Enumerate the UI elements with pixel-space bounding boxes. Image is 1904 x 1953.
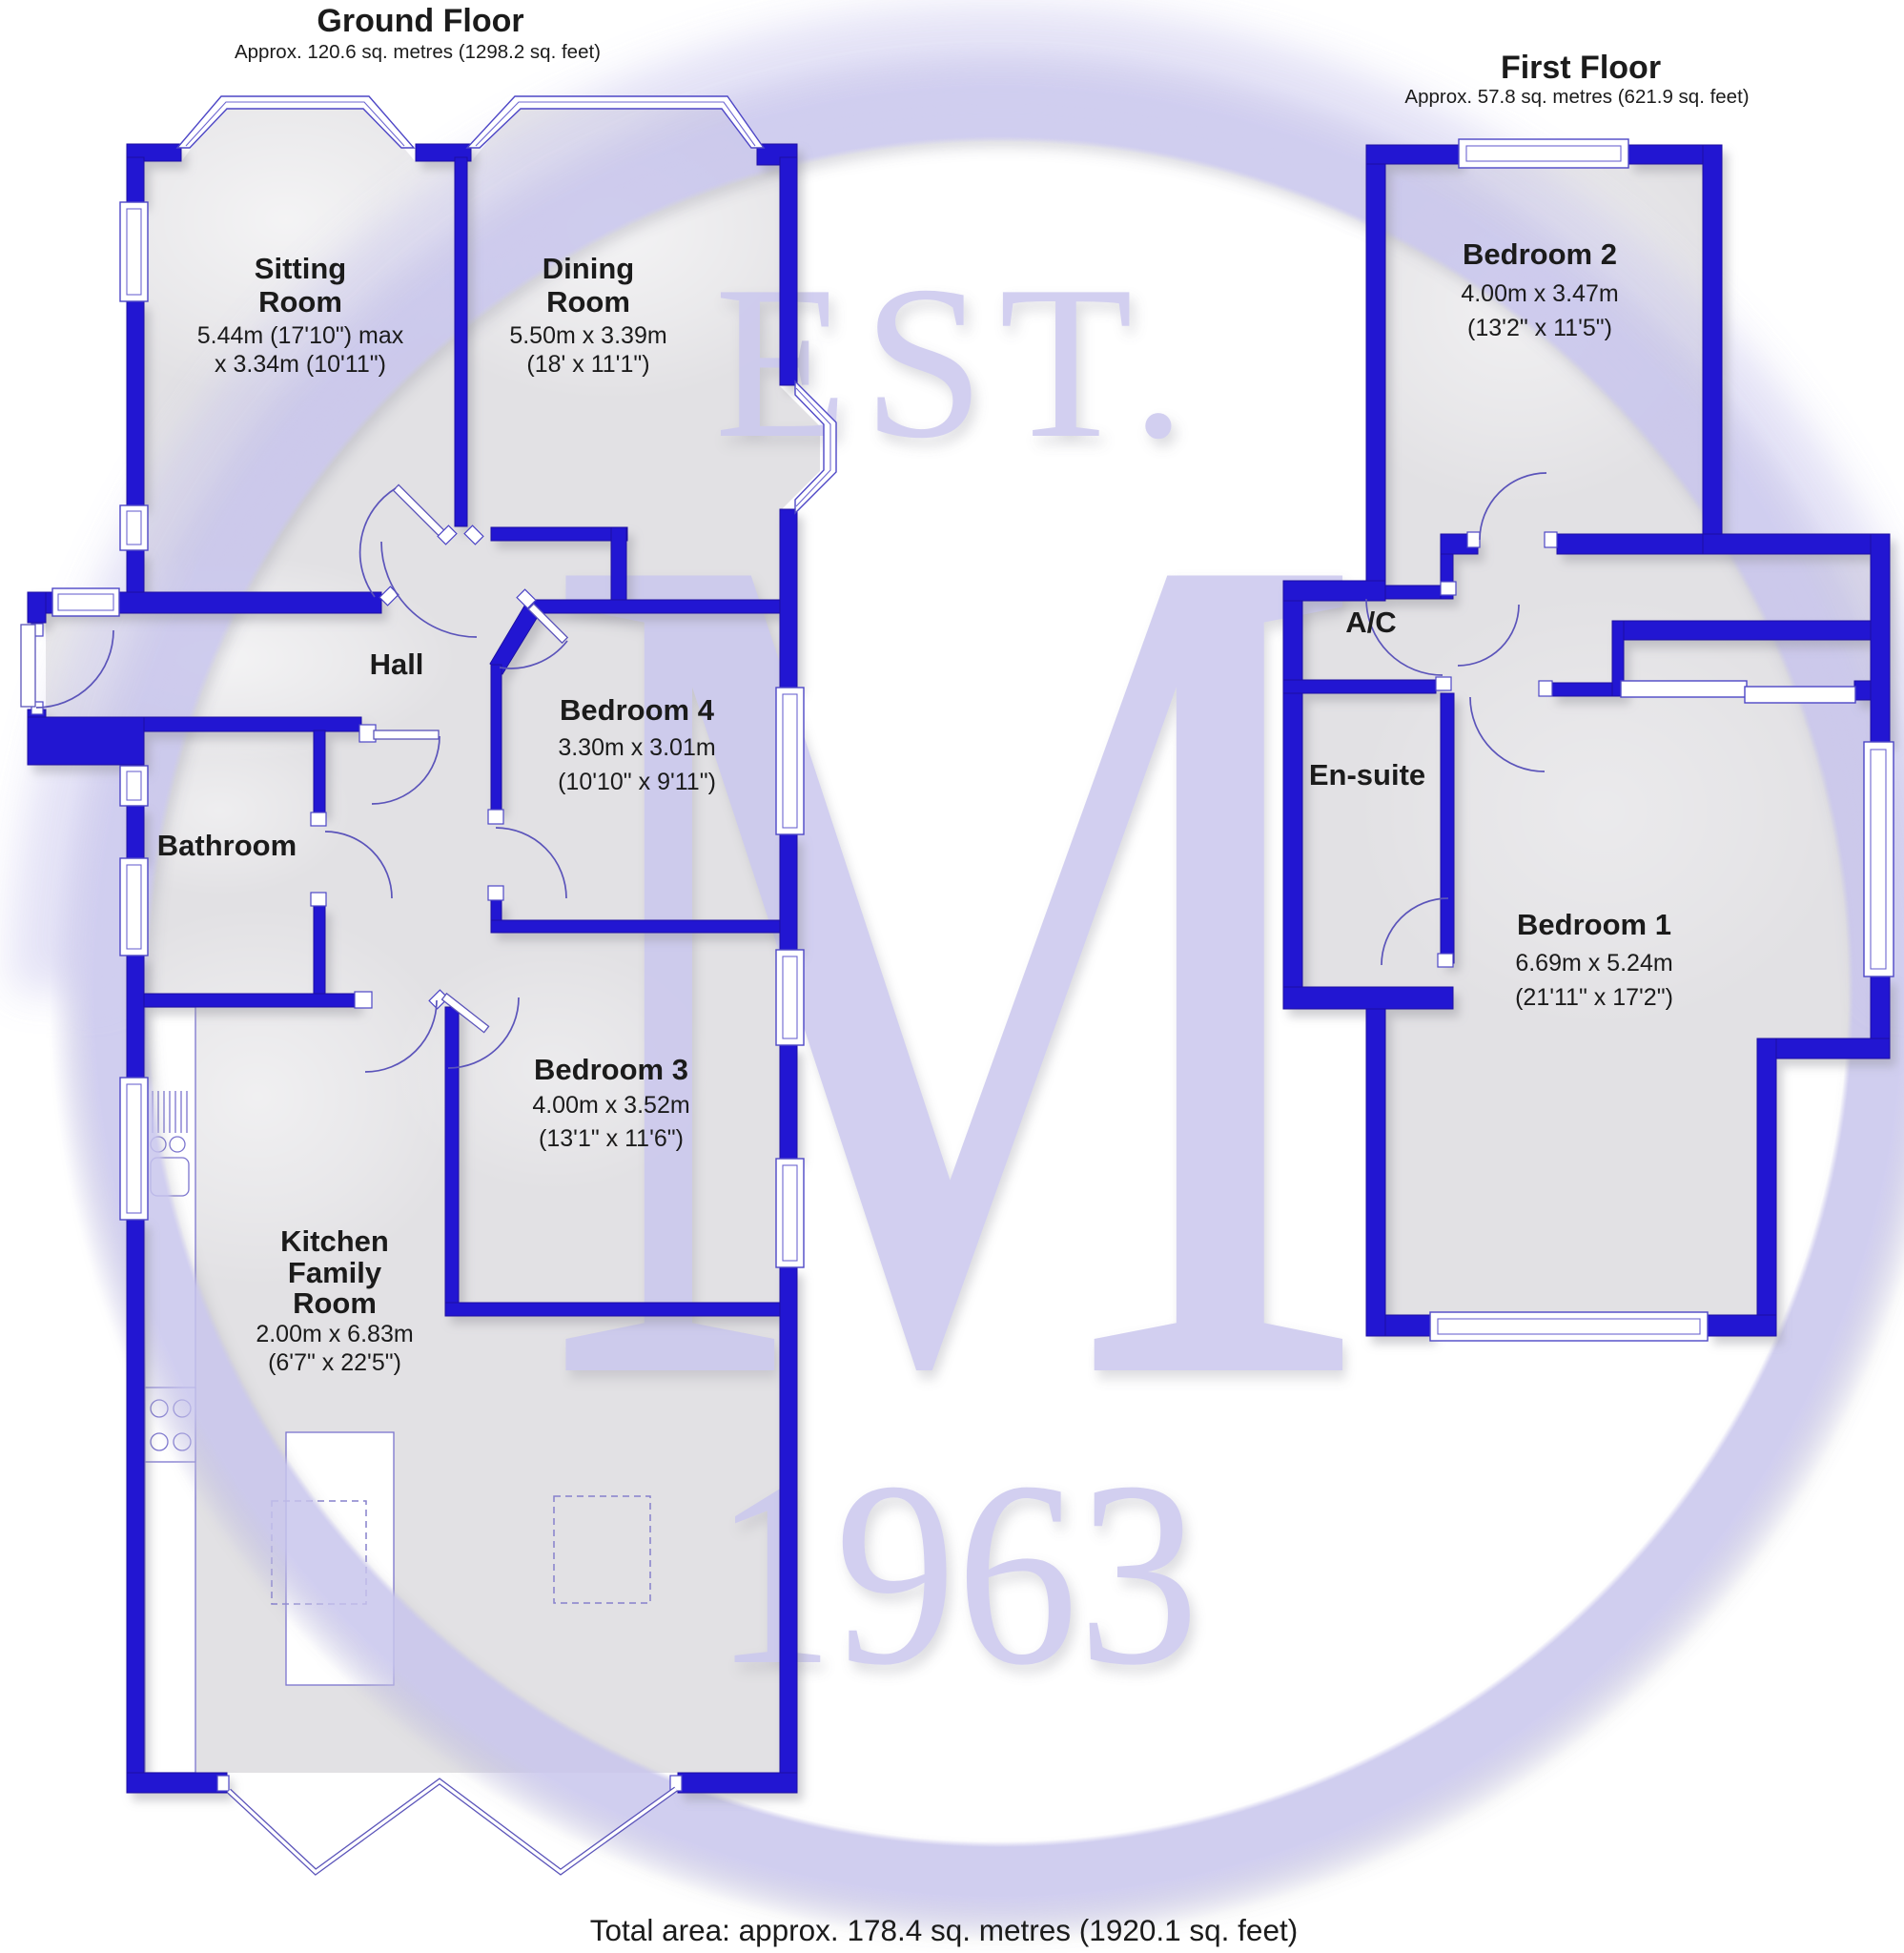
svg-text:Bathroom: Bathroom [157,829,297,862]
svg-text:2.00m x 6.83m: 2.00m x 6.83m [256,1321,413,1347]
svg-text:(10'10" x 9'11"): (10'10" x 9'11") [558,769,716,795]
svg-text:Room: Room [293,1286,377,1320]
svg-text:(6'7" x 22'5"): (6'7" x 22'5") [268,1349,401,1376]
svg-text:3.30m x 3.01m: 3.30m x 3.01m [558,734,715,761]
svg-text:Bedroom 1: Bedroom 1 [1517,908,1671,941]
svg-text:Bedroom 2: Bedroom 2 [1463,237,1617,271]
svg-text:(21'11" x 17'2"): (21'11" x 17'2") [1515,984,1673,1011]
svg-text:Total area: approx. 178.4 sq.: Total area: approx. 178.4 sq. metres (19… [590,1913,1298,1947]
svg-text:Ground Floor: Ground Floor [317,3,523,39]
svg-text:6.69m x 5.24m: 6.69m x 5.24m [1515,950,1672,976]
svg-text:Approx. 57.8 sq. metres (621.9: Approx. 57.8 sq. metres (621.9 sq. feet) [1404,86,1749,108]
svg-text:Family: Family [288,1256,382,1289]
svg-text:Kitchen: Kitchen [280,1224,389,1258]
svg-text:Bedroom 3: Bedroom 3 [534,1053,688,1086]
svg-text:Room: Room [258,285,342,319]
svg-text:5.50m x 3.39m: 5.50m x 3.39m [509,322,666,349]
svg-text:Sitting: Sitting [255,252,346,285]
svg-text:(13'2" x 11'5"): (13'2" x 11'5") [1467,315,1612,341]
svg-text:(18' x 11'1"): (18' x 11'1") [526,351,649,378]
svg-text:5.44m (17'10") max: 5.44m (17'10") max [197,322,404,349]
svg-text:x 3.34m (10'11"): x 3.34m (10'11") [215,351,386,378]
svg-text:Approx. 120.6 sq. metres (1298: Approx. 120.6 sq. metres (1298.2 sq. fee… [235,41,601,63]
svg-text:Hall: Hall [370,648,424,681]
svg-text:Bedroom 4: Bedroom 4 [560,693,715,727]
svg-text:4.00m x 3.52m: 4.00m x 3.52m [532,1092,689,1119]
svg-text:En-suite: En-suite [1309,758,1425,791]
svg-text:4.00m x 3.47m: 4.00m x 3.47m [1461,280,1618,307]
svg-text:A/C: A/C [1345,606,1396,639]
svg-text:First Floor: First Floor [1501,50,1661,86]
svg-text:(13'1" x 11'6"): (13'1" x 11'6") [539,1125,684,1152]
svg-text:Room: Room [546,285,630,319]
svg-text:Dining: Dining [543,252,634,285]
